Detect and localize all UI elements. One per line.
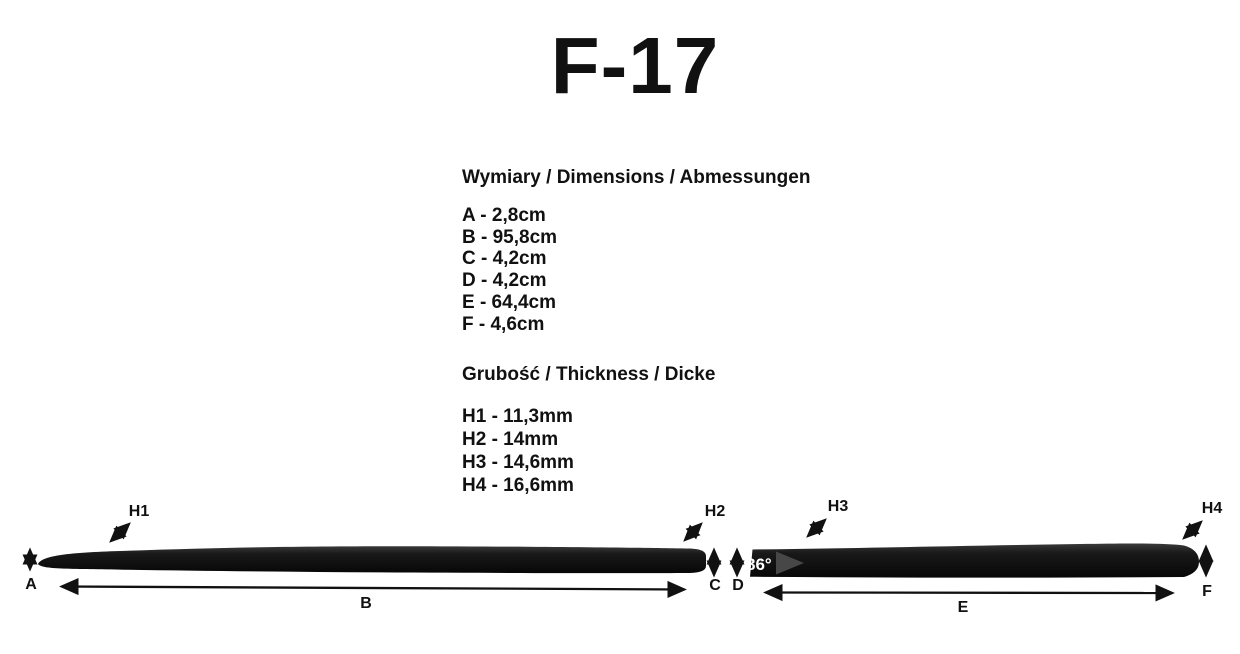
dimension-line-b: B - 95,8cm xyxy=(462,227,557,249)
thickness-arrow-H4 xyxy=(1184,522,1201,538)
thickness-list: H1 - 11,3mm H2 - 14mm H3 - 14,6mm H4 - 1… xyxy=(462,405,574,497)
dimension-line-d: D - 4,2cm xyxy=(462,270,557,292)
label-h1: H1 xyxy=(129,504,149,520)
page-title: F-17 xyxy=(15,26,1240,106)
dimension-line-e: E - 64,4cm xyxy=(462,292,557,314)
thickness-heading: Grubość / Thickness / Dicke xyxy=(462,365,715,386)
label-b: B xyxy=(360,596,372,612)
dim-arrow-E xyxy=(766,593,1172,594)
label-c: C xyxy=(709,578,721,594)
thickness-line-h3: H3 - 14,6mm xyxy=(462,451,574,474)
angle-label: 86° xyxy=(746,556,772,573)
dimension-line-f: F - 4,6cm xyxy=(462,314,557,336)
label-d: D xyxy=(732,578,744,594)
dimensions-heading: Wymiary / Dimensions / Abmessungen xyxy=(462,168,810,189)
left-molding-strip xyxy=(38,546,706,573)
label-h4: H4 xyxy=(1202,501,1222,517)
right-molding-strip xyxy=(750,543,1199,577)
dimensions-list: A - 2,8cm B - 95,8cm C - 4,2cm D - 4,2cm… xyxy=(462,205,557,335)
dimension-line-a: A - 2,8cm xyxy=(462,205,557,227)
label-h2: H2 xyxy=(705,504,725,520)
molding-diagram xyxy=(0,494,1240,654)
label-a: A xyxy=(25,577,37,593)
thickness-arrow-H3 xyxy=(808,520,825,536)
dimension-sheet: F-17 Wymiary / Dimensions / Abmessungen … xyxy=(0,0,1240,654)
label-e: E xyxy=(958,600,969,616)
thickness-line-h1: H1 - 11,3mm xyxy=(462,405,574,428)
label-f: F xyxy=(1202,584,1212,600)
diagram-drawing xyxy=(0,494,1240,654)
label-h3: H3 xyxy=(828,499,848,515)
thickness-arrow-H2 xyxy=(685,524,701,540)
dim-arrow-B xyxy=(62,587,684,590)
dimension-line-c: C - 4,2cm xyxy=(462,248,557,270)
thickness-line-h2: H2 - 14mm xyxy=(462,428,574,451)
thickness-arrow-H1 xyxy=(111,524,129,541)
